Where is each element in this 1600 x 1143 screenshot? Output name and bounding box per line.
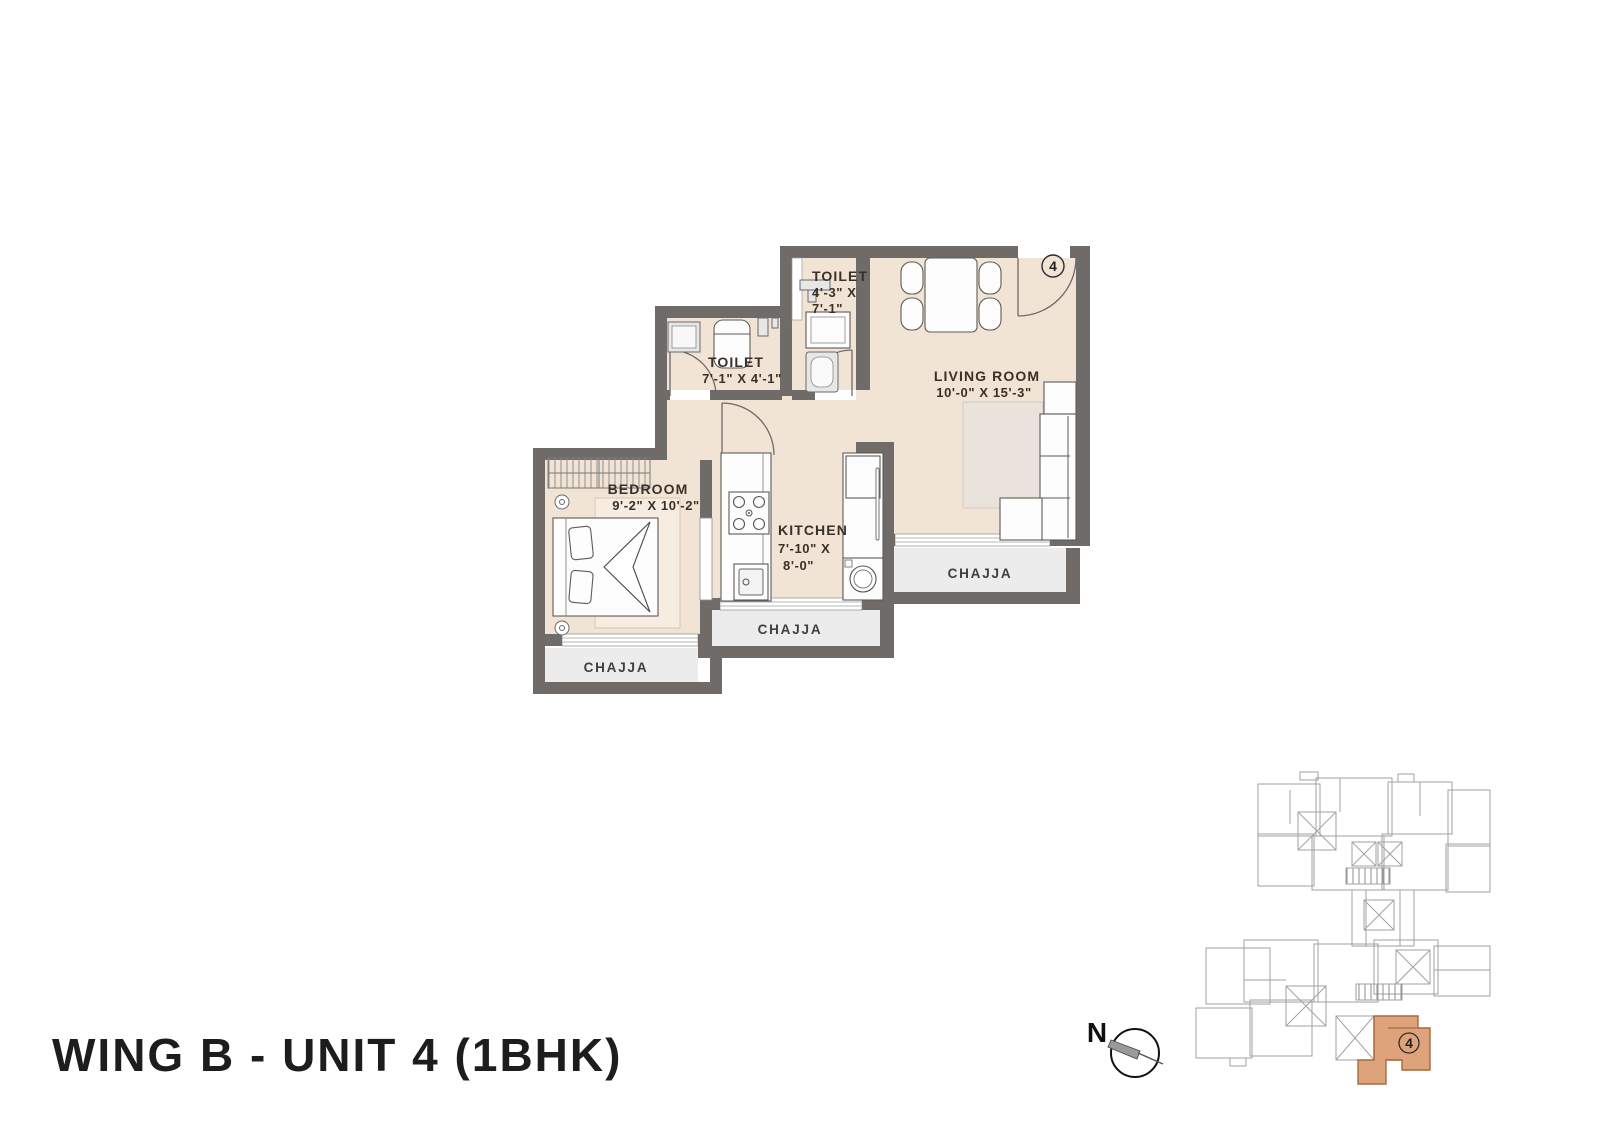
toilet-left-label: TOILET [708,354,764,370]
chajja-middle-label: CHAJJA [758,622,823,637]
unit-number: 4 [1049,258,1057,274]
bed-icon [553,518,658,616]
keyplan-stair [1346,868,1390,884]
toilet-left-dims: 7'-1" X 4'-1" [702,371,782,386]
toilet-top-label: TOILET [812,268,868,284]
unit-number-badge: 4 [1042,255,1064,277]
north-compass-icon: N [1087,1017,1163,1077]
kitchen-label: KITCHEN [778,522,848,538]
living-rug [963,402,1043,508]
bedroom-dims: 9'-2" X 10'-2" [612,498,700,513]
north-label: N [1087,1017,1107,1048]
kitchen-sink-icon [734,564,768,600]
living-room-dims: 10'-0" X 15'-3" [936,385,1031,400]
dining-chair [901,298,923,330]
keyplan-upper-block [1258,772,1490,892]
bedroom-label: BEDROOM [608,481,689,497]
page-title: WING B - UNIT 4 (1BHK) [52,1028,622,1082]
dining-chair [979,298,1001,330]
tall-unit-handle [876,468,879,540]
toilet-top-dims-2: 7'-1" [812,301,843,316]
floorplan-page: 4 TOILET 4'-3" X 7'-1" TOILET 7'-1" X 4'… [0,0,1600,1143]
kitchen-dims-1: 7'-10" X [778,541,830,556]
bedroom-window [562,634,698,646]
chajja-left-label: CHAJJA [584,660,649,675]
kitchen-dims-2: 8'-0" [783,558,814,573]
pillow [569,570,594,604]
key-plan: 4 [1196,772,1490,1084]
keyplan-core-block [1352,890,1414,946]
dining-chair [901,262,923,294]
keyplan-stair [1356,984,1402,1000]
keyplan-unit-number: 4 [1405,1035,1413,1051]
keyplan-lower-block [1196,890,1490,1066]
living-room-label: LIVING ROOM [934,368,1040,384]
dining-chair [979,262,1001,294]
stove-icon [729,492,769,534]
floor-plan: 4 TOILET 4'-3" X 7'-1" TOILET 7'-1" X 4'… [533,246,1090,694]
washing-machine-icon [843,558,883,600]
dining-table [925,258,977,332]
keyplan-unit-highlight: 4 [1358,1016,1430,1084]
chajja-right-label: CHAJJA [948,566,1013,581]
pillow [568,526,593,560]
toilet-top-dims-1: 4'-3" X [812,285,857,300]
side-table [1044,382,1076,414]
floorplan-drawing: 4 TOILET 4'-3" X 7'-1" TOILET 7'-1" X 4'… [0,0,1600,1143]
fridge-icon [846,456,880,498]
bedroom-door-leaf [700,518,712,600]
